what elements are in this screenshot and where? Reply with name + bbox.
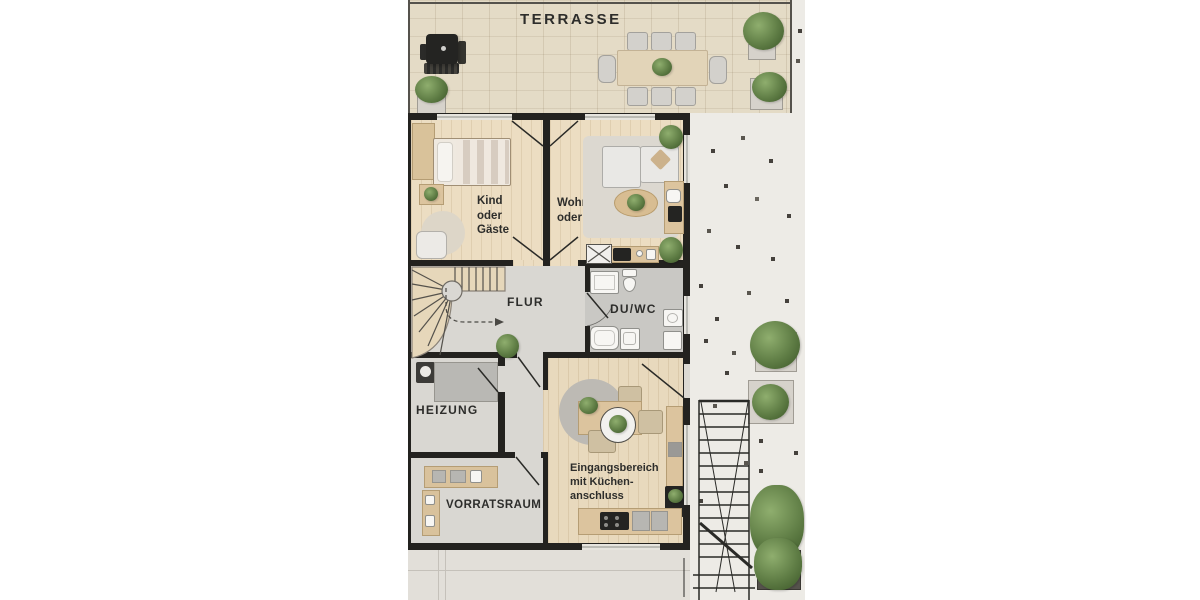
door-swing-icon bbox=[478, 121, 684, 485]
stairs-icon bbox=[412, 267, 505, 358]
exterior-stairs-icon bbox=[684, 400, 755, 600]
floor-plan-canvas: TERRASSE bbox=[0, 0, 1200, 600]
linework-overlay bbox=[0, 0, 1200, 600]
side-table-cross bbox=[588, 246, 610, 262]
